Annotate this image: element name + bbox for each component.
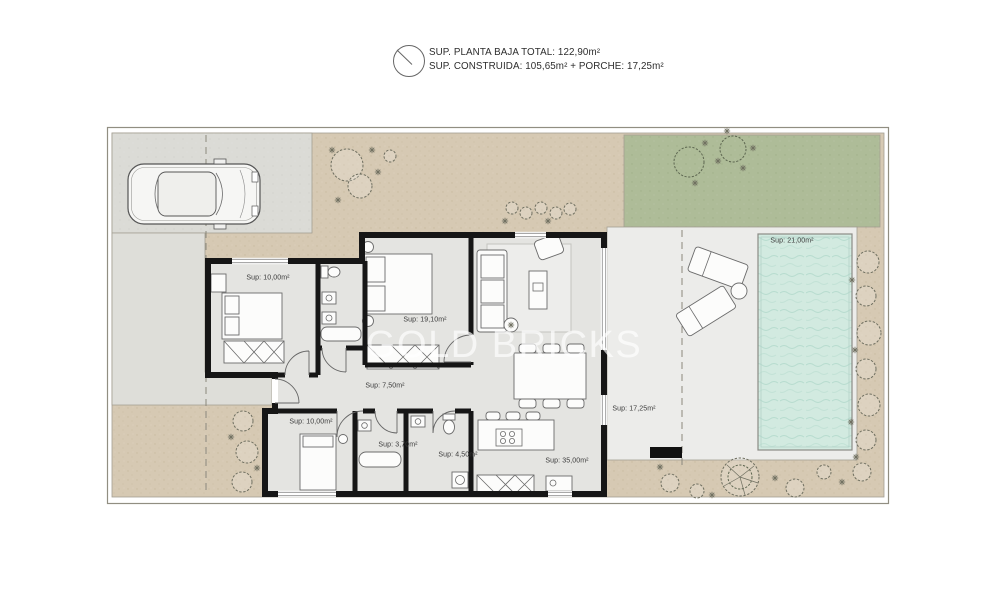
room-label-porch: Sup: 17,25m² [612,406,655,413]
floor-plan-page: SUP. PLANTA BAJA TOTAL: 122,90m² SUP. CO… [0,0,1001,606]
room-label-pool: Sup: 21,00m² [770,238,813,245]
room-label-bathroom-large: Sup: 4,50m² [438,452,477,459]
side-table [731,283,747,299]
watermark: GOLD BRICKS [366,324,642,367]
room-label-bedroom-1: Sup: 10,00m² [246,275,289,282]
pool [758,234,852,450]
room-label-hallway: Sup: 7,50m² [365,383,404,390]
car-top-view-icon [128,159,260,229]
room-label-bathroom-small: Sup: 3,70m² [378,442,417,449]
room-label-living-kitchen: Sup: 35,00m² [545,458,588,465]
floor-plan-drawing [0,0,1001,606]
title-line-2: SUP. CONSTRUIDA: 105,65m² + PORCHE: 17,2… [429,60,664,74]
title-block: SUP. PLANTA BAJA TOTAL: 122,90m² SUP. CO… [429,46,664,74]
title-line-1: SUP. PLANTA BAJA TOTAL: 122,90m² [429,46,664,60]
doormat [650,447,682,458]
room-label-master-bedroom: Sup: 19,10m² [403,317,446,324]
room-label-bedroom-2: Sup: 10,00m² [289,419,332,426]
north-compass-icon [394,46,425,77]
